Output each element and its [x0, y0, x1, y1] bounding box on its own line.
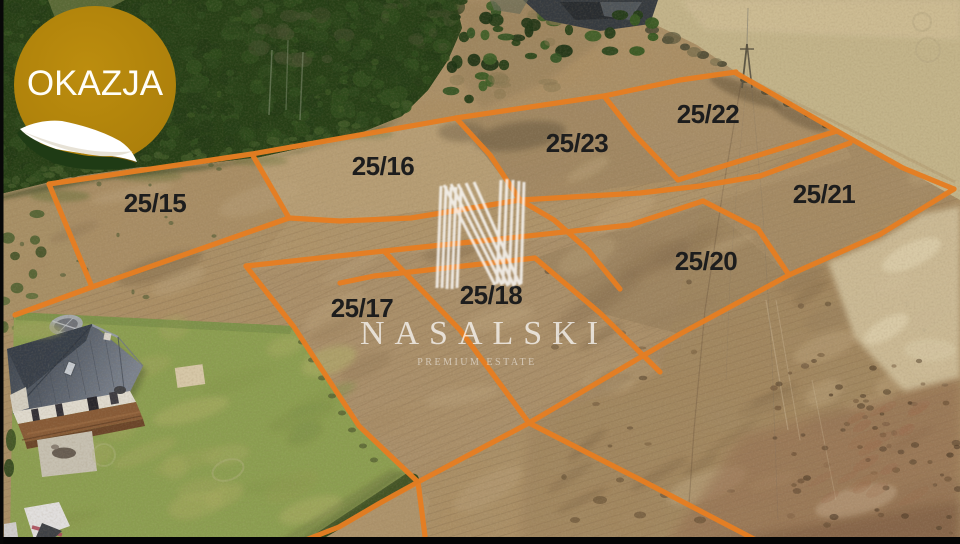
- svg-text:25/23: 25/23: [546, 128, 609, 158]
- svg-text:OKAZJA: OKAZJA: [27, 64, 164, 103]
- svg-text:25/15: 25/15: [124, 188, 187, 218]
- svg-text:25/16: 25/16: [352, 151, 415, 181]
- svg-text:PREMIUM ESTATE: PREMIUM ESTATE: [417, 357, 536, 368]
- svg-text:25/22: 25/22: [677, 99, 740, 129]
- svg-text:25/20: 25/20: [675, 246, 738, 276]
- svg-text:NASALSKI: NASALSKI: [360, 315, 608, 352]
- svg-text:25/21: 25/21: [793, 179, 856, 209]
